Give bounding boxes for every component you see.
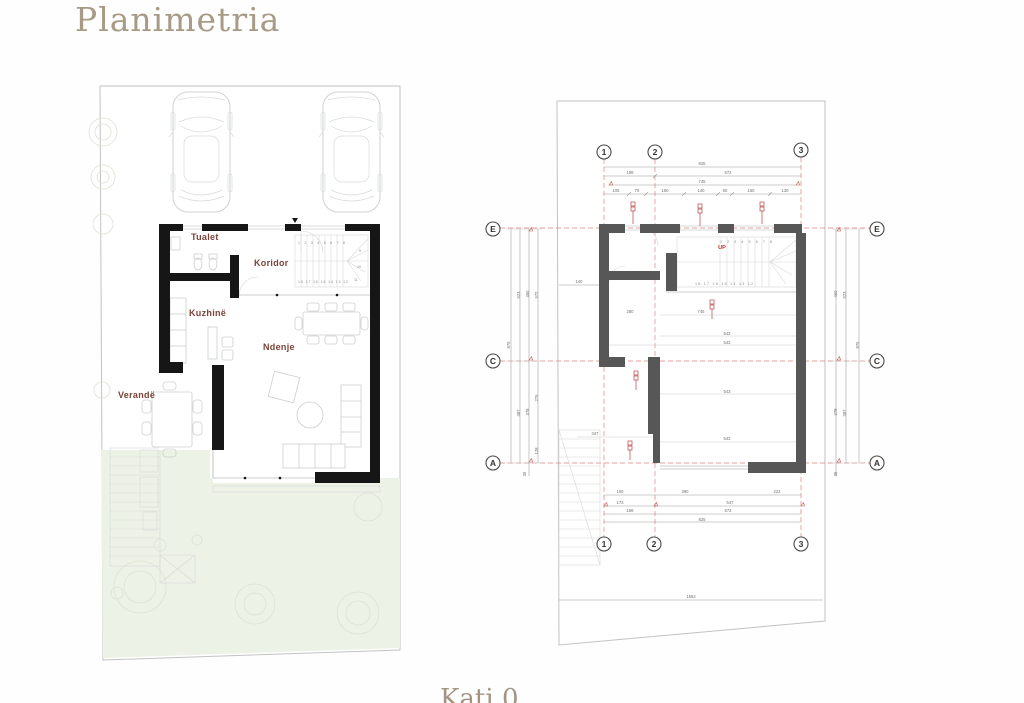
dimension-label: 745 [699,179,707,184]
furnished-plan: 1 2 3 4 5 6 7 8 18 17 16 15 14 13 12 9 1… [95,82,407,674]
room-label-verande: Verandë [118,390,155,400]
room-label-ndenje: Ndenje [263,342,295,352]
dimension-label: 523 [516,291,521,299]
room-label-tualet: Tualet [191,232,219,242]
stair-numbers: 1 2 3 4 5 6 7 8 [298,241,345,245]
dimension-label: 543 [724,331,732,336]
floor-caption: Kati 0 [440,684,519,703]
grid-bubble-3: 3 [799,539,804,549]
dimension-label: 35 [833,471,838,476]
floor-plan-page: Planimetria [0,0,1024,703]
page-title: Planimetria [75,0,280,39]
dimension-label: 572 [725,170,733,175]
room-label-koridor: Koridor [254,258,289,268]
dimension-label: 70 [635,188,640,193]
dimension-label: 572 [725,508,733,513]
grid-bubble-A: A [490,458,496,468]
grid-bubble-A: A [874,458,880,468]
dimension-label: 1562 [686,594,696,599]
dimension-label: 100 [617,489,625,494]
stair-numbers: 18 17 16 15 14 13 12 [298,280,348,284]
dimension-label: 572 [534,291,539,299]
dimension-label: 173 [617,500,625,505]
stair-number: 11 [354,278,358,282]
up-label: UP [718,245,726,251]
grid-bubble-1: 1 [602,147,607,157]
dimension-label: 60 [723,188,728,193]
dimension-label: 745 [698,309,706,314]
dimension-label: 390 [682,489,690,494]
dimension-label: 198 [627,170,635,175]
dimension-label: 160 [662,188,670,193]
dimension-label: 387 [516,409,521,417]
stair-number: 10 [357,265,361,269]
dimension-label: 140 [698,188,706,193]
dimension-label: 387 [842,409,847,417]
dimension-label: 347 [592,431,600,436]
dimension-label: 280 [627,309,635,314]
room-label-kuzhine: Kuzhinë [189,308,226,318]
grid-bubble-E: E [490,224,496,234]
dimension-label: 543 [724,436,732,441]
dimension-label: 128 [534,447,539,455]
stair-numbers: 1 2 3 4 5 6 7 8 [720,240,772,244]
dimension-label: 825 [699,161,707,166]
dimension-label: 140 [576,279,584,284]
dimension-label: 160 [748,188,756,193]
dimension-label: 222 [774,489,782,494]
grid-bubble-C: C [490,356,496,366]
dimension-label: 378 [525,408,530,416]
dimension-label: 35 [522,471,527,476]
dimension-label: 875 [506,341,511,349]
stair-number: 9 [359,249,361,253]
dimension-label: 378 [833,408,838,416]
dimension-label: 523 [842,291,847,299]
dimension-label: 543 [724,389,732,394]
site-boundary [557,101,825,645]
grid-bubble-E: E [874,224,880,234]
grid-bubble-1: 1 [602,539,607,549]
dimension-label: 543 [724,340,732,345]
grid-bubble-3: 3 [799,145,804,155]
dimension-label: 875 [855,341,860,349]
grid-bubble-2: 2 [652,539,657,549]
grid-bubble-C: C [874,356,880,366]
technical-plan: 1 2 3 4 5 6 7 8 18 17 16 15 14 13 12 UP [480,95,890,655]
grid-bubble-2: 2 [653,147,658,157]
dimension-label: 460 [525,290,530,298]
car-icon [319,92,384,212]
dimension-label: 460 [833,290,838,298]
dimension-label: 105 [613,188,621,193]
dimension-label: 198 [627,508,635,513]
dimension-label: 547 [727,500,735,505]
car-icon [169,92,234,212]
dimension-label: 130 [782,188,790,193]
dimension-label: 825 [699,517,707,522]
dimension-label: 275 [534,394,539,402]
